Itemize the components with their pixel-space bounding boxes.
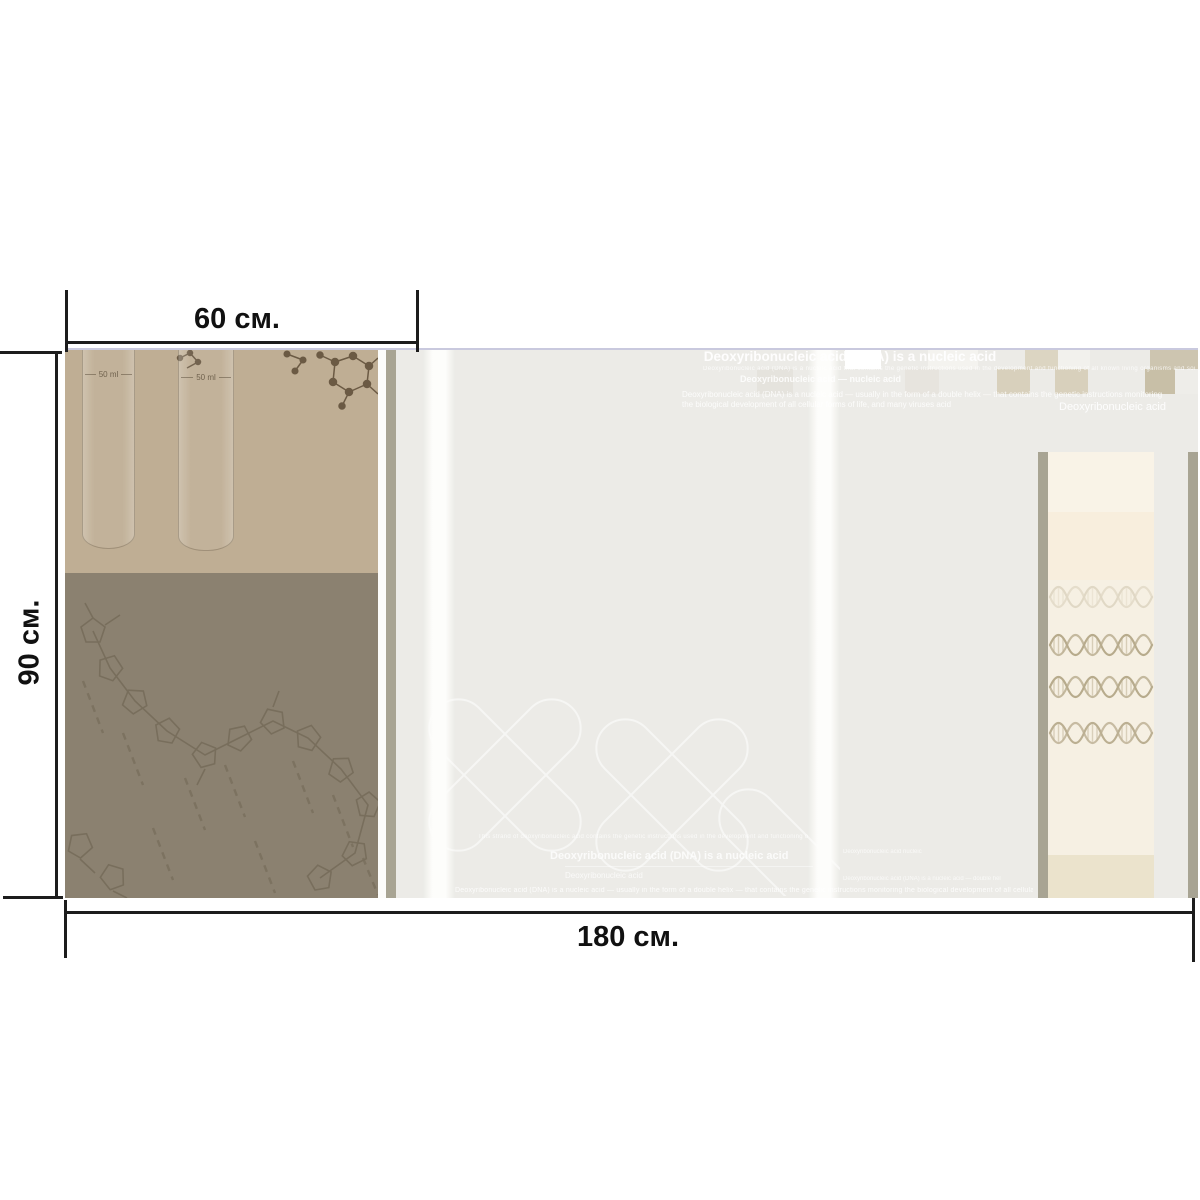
tube-volume-label: 50 ml [196, 373, 216, 382]
footer-divider-line [565, 866, 813, 867]
dimension-tick [1192, 898, 1195, 962]
olive-stripe [1188, 452, 1198, 898]
footer-edge-text: Deoxyribonucleic acid (DNA) is a nucleic… [455, 887, 1033, 894]
white-divider-band [808, 350, 840, 898]
dimension-tick [3, 896, 63, 899]
test-tube: 50 ml [178, 350, 234, 551]
panel-left-top-section: 50 ml 50 ml [65, 350, 378, 573]
cream-dark-section [1048, 855, 1154, 898]
cream-section [1048, 452, 1154, 512]
olive-stripe [1038, 452, 1048, 898]
olive-stripe [386, 350, 396, 898]
dimension-label-180cm: 180 см. [538, 921, 718, 954]
dimension-tick [65, 290, 68, 352]
panel-divider-gap [378, 350, 386, 898]
footer-tiny-text: This strand of deoxyribonucleic acid con… [478, 834, 808, 840]
dna-subtitle-text: Deoxyribonucleic acid — nucleic acid [740, 374, 960, 384]
test-tube: 50 ml [82, 350, 135, 549]
footer-small-label-text: Deoxyribonucleic acid [565, 871, 725, 880]
dna-right-label-text: Deoxyribonucleic acid [1055, 401, 1170, 413]
dimension-tick [0, 351, 62, 354]
checker-square [1175, 369, 1198, 394]
cream-peach-section [1048, 512, 1154, 580]
dimension-line-60cm [65, 341, 419, 344]
white-divider-band [423, 350, 455, 898]
dna-helix-strip [1048, 452, 1154, 898]
dna-helix-icon [1048, 575, 1154, 765]
dna-title-text: Deoxyribonucleic acid (DNA) is a nucleic… [700, 349, 1000, 364]
dimension-label-60cm: 60 см. [147, 303, 327, 336]
tube-volume-mark: 50 ml [181, 373, 231, 382]
right-panel-tiny-text: Deoxyribonucleic acid (DNA) is a nucleic… [843, 876, 1001, 882]
design-proof-canvas: 50 ml 50 ml [0, 0, 1200, 1200]
tube-volume-mark: 50 ml [85, 370, 132, 379]
dimension-label-90cm: 90 см. [2, 575, 58, 710]
dimension-tick [416, 290, 419, 352]
banner-top-accent-line [65, 348, 1198, 350]
dimension-tick [64, 900, 67, 958]
right-panel-tiny-text: Deoxyribonucleic acid nucleic [843, 849, 933, 855]
panel-left-bottom-section [65, 573, 378, 898]
tube-volume-label: 50 ml [99, 370, 119, 379]
dna-subline-text: Deoxyribonucleic acid (DNA) is a nucleic… [703, 366, 1195, 372]
dimension-line-180cm [64, 911, 1195, 914]
dna-chemical-sketch-icon [65, 573, 378, 898]
